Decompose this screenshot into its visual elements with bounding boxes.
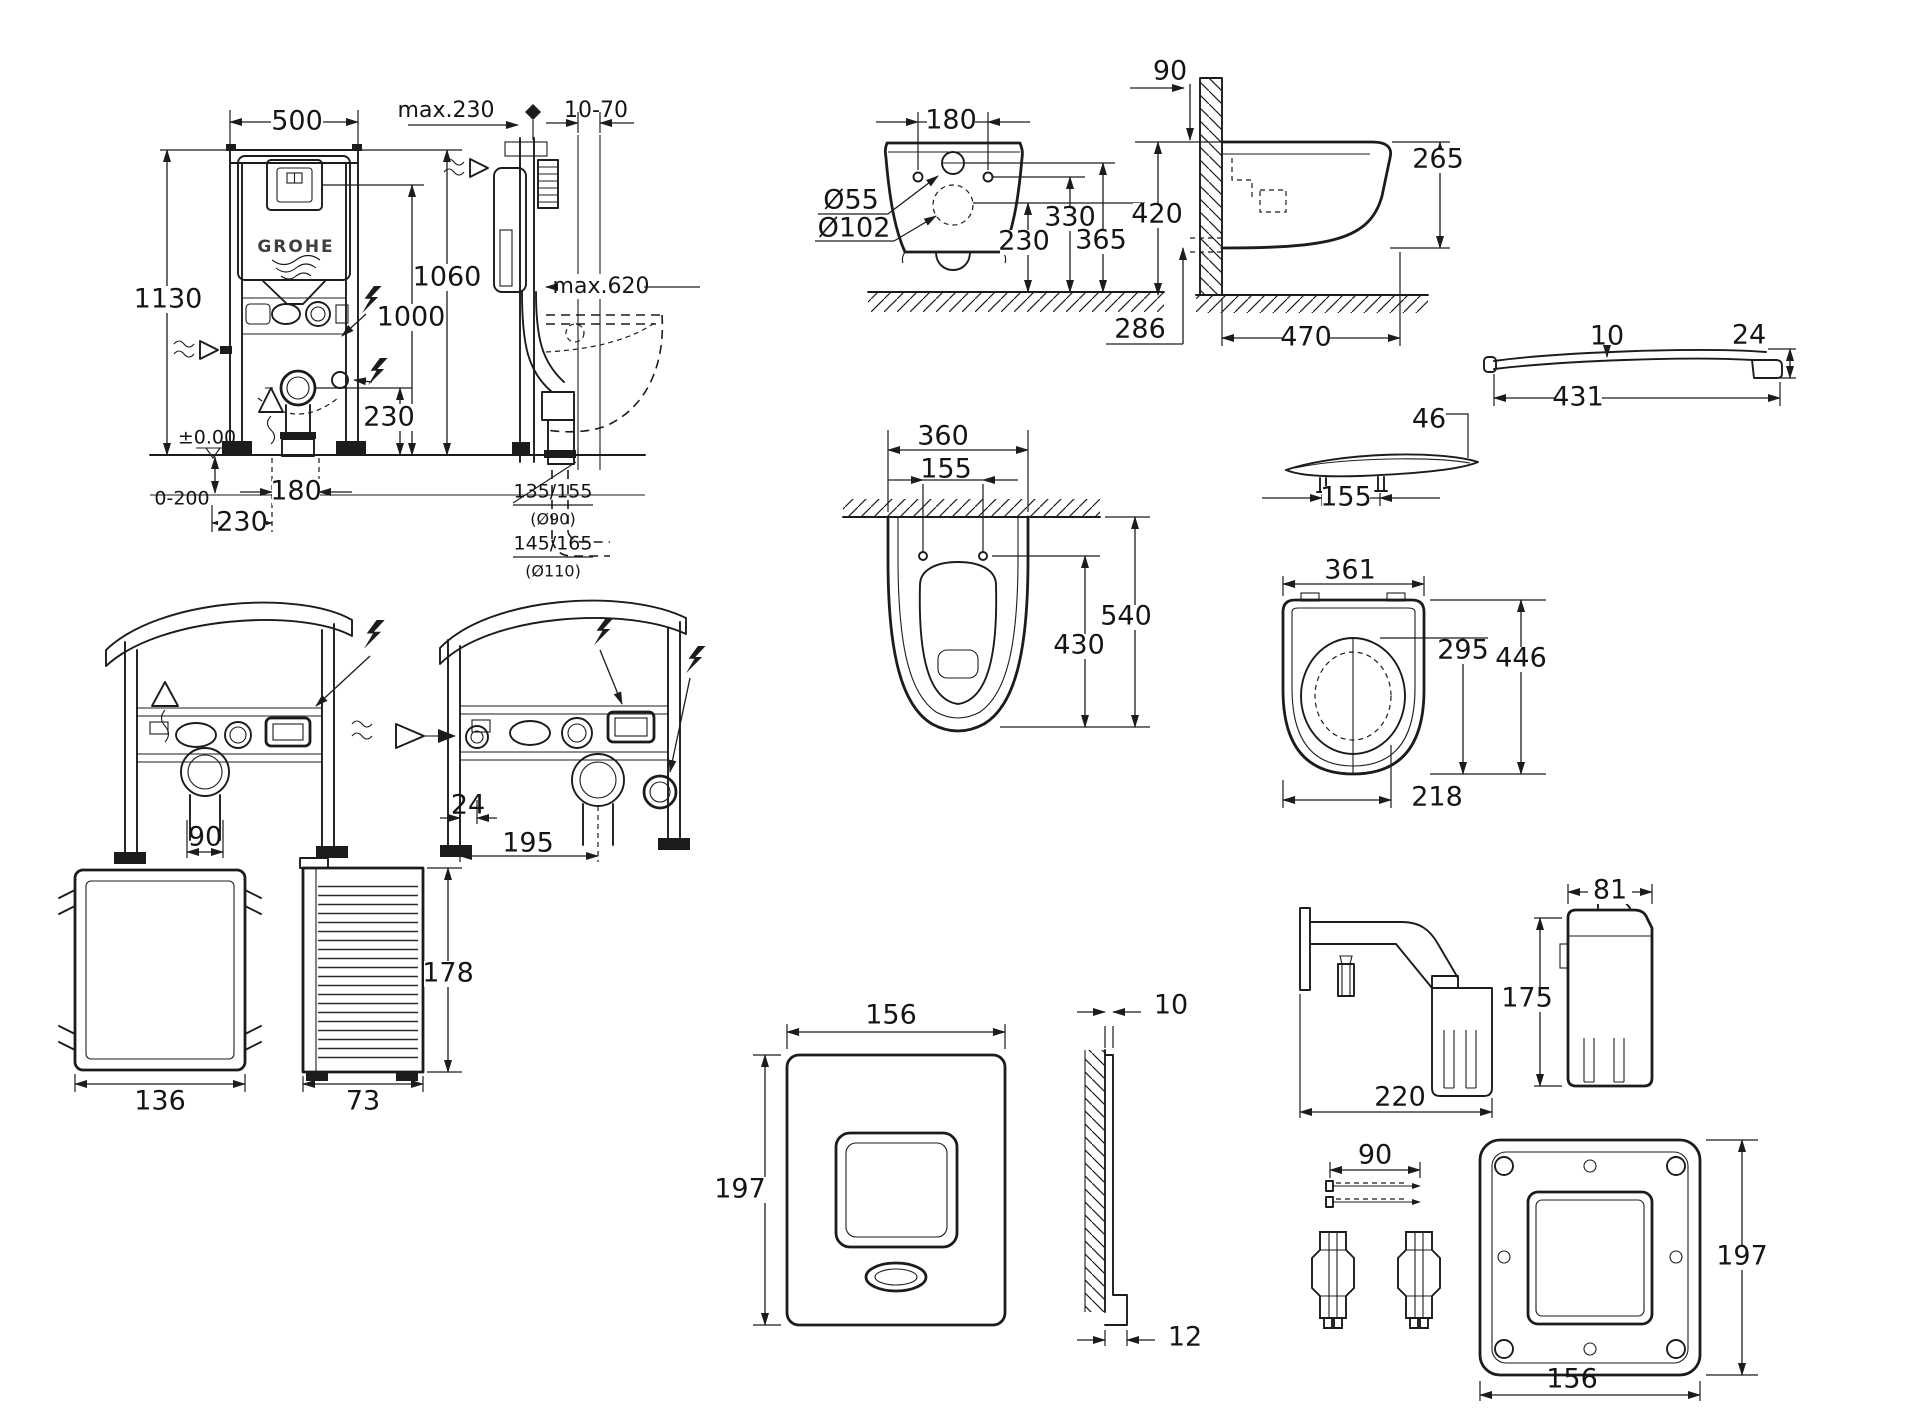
dim-plate-height: 197	[714, 1174, 766, 1205]
seat-clip	[1398, 1232, 1440, 1328]
technical-drawing-sheet: GROHE 500 1130 max.230 1060 1000 230 ±0.…	[0, 0, 1920, 1422]
dim-seat-rear-thickness: 24	[1732, 320, 1766, 351]
outlet-height-90: 135/155	[514, 481, 593, 503]
lightning-bolt-icon	[594, 618, 614, 645]
water-supply-icon	[352, 721, 372, 739]
dim-hole-spacing: 180	[925, 105, 977, 136]
lightning-bolt-icon	[364, 620, 385, 649]
wc-top-view: 360 155 540 430	[843, 421, 1152, 732]
dim-flush-height: 1060	[413, 262, 482, 293]
dim-drain-height: 230	[363, 402, 415, 433]
dim-plate-frame-depth: 12	[1168, 1322, 1202, 1353]
wc-side-view: 90 420 265 470	[1130, 56, 1464, 353]
cartridge-view: 81 175	[1501, 875, 1652, 1087]
seat-section-view: 46 155	[1262, 404, 1478, 513]
drawing-canvas: GROHE 500 1130 max.230 1060 1000 230 ±0.…	[0, 0, 1920, 1422]
outlet-dia-110: (Ø110)	[525, 562, 581, 581]
dim-outlet-dia: Ø102	[818, 213, 891, 244]
dim-box-depth: 73	[346, 1086, 380, 1117]
outlet-height-110: 145/165	[514, 533, 593, 555]
dim-floor-range: 0-200	[154, 488, 209, 510]
lightning-bolt-icon	[368, 358, 388, 385]
frame-side-view: 10-70 max.620 135/155 (Ø90) 145/165 (Ø11…	[444, 98, 700, 581]
flush-plate-views: 156 197 10 12	[714, 990, 1202, 1353]
seat-clip	[1312, 1232, 1354, 1328]
zero-level-label: ±0.00	[178, 427, 236, 449]
dim-cartridge-width: 81	[1593, 875, 1627, 906]
dim-outlet-depth: 286	[1114, 314, 1166, 345]
wc-front-view: 180 Ø55 Ø102 330 365 230 286	[815, 105, 1183, 345]
dim-supply-height: 1000	[377, 302, 446, 333]
dim-box-width: 136	[134, 1086, 186, 1117]
dim-iso-right-offset: 195	[502, 828, 554, 859]
dim-depth: 470	[1280, 322, 1332, 353]
dim-hole-to-front: 430	[1053, 630, 1105, 661]
water-supply-icon	[174, 341, 194, 357]
dim-plate-thickness: 10	[1154, 990, 1188, 1021]
dim-outlet-height: 230	[998, 226, 1050, 257]
dim-seat-front-thickness: 10	[1590, 321, 1624, 352]
dim-body-height: 265	[1412, 144, 1464, 175]
dim-iso-left-offset: 90	[188, 822, 222, 853]
dim-mount-width: 156	[1546, 1364, 1598, 1395]
dim-cartridge-height: 175	[1501, 983, 1553, 1014]
dim-seat-thickness: 46	[1412, 404, 1446, 435]
dim-box-height: 178	[422, 958, 474, 989]
dim-rim-height: 420	[1131, 199, 1183, 230]
frame-iso-left: 90	[106, 603, 385, 864]
dim-screw-length: 90	[1358, 1140, 1392, 1171]
dim-frame-width: 500	[271, 106, 323, 137]
flush-direction-icon	[152, 682, 178, 706]
dim-wall-thickness: 10-70	[564, 98, 628, 123]
flush-direction-icon	[259, 388, 283, 412]
dim-inlet-dia: Ø55	[823, 185, 879, 216]
dim-seat-reach: max.620	[553, 274, 650, 299]
grohe-logo: GROHE	[257, 237, 334, 257]
frame-iso-right: 24 195	[352, 601, 706, 862]
protection-box-views: 136 73 178	[59, 858, 474, 1117]
dim-seat-top-width: 361	[1324, 555, 1376, 586]
dim-top-holes: 155	[920, 454, 972, 485]
dim-seat-top-length: 446	[1495, 643, 1547, 674]
dim-mount-height: 197	[1716, 1241, 1768, 1272]
mounting-frame-view: 90 197 156	[1312, 1140, 1768, 1402]
dim-frame-height: 1130	[134, 284, 203, 315]
dim-iso-rail-gap: 24	[451, 790, 485, 821]
dim-top-width: 360	[917, 421, 969, 452]
dim-inset: 90	[1153, 56, 1187, 87]
dim-hinge-offset: 218	[1411, 782, 1463, 813]
seat-profile-view: 10 24 431	[1484, 320, 1796, 413]
dim-top-height: 365	[1075, 225, 1127, 256]
dim-seat-length: 431	[1552, 382, 1604, 413]
dim-drain-offset2: 230	[216, 507, 268, 538]
dim-seat-inner-length: 295	[1437, 635, 1489, 666]
dim-frame-depth: max.230	[398, 98, 495, 123]
lightning-bolt-icon	[686, 646, 706, 673]
outlet-dia-90: (Ø90)	[530, 510, 575, 529]
dim-plate-width: 156	[865, 1000, 917, 1031]
dim-top-depth: 540	[1100, 601, 1152, 632]
dim-drain-offset: 180	[270, 476, 322, 507]
dim-bracket-length: 220	[1374, 1082, 1426, 1113]
wall-bracket-view: 220	[1300, 908, 1492, 1118]
dim-hinge-spacing: 155	[1320, 482, 1372, 513]
seat-top-view: 361 295 446 218	[1283, 555, 1547, 813]
